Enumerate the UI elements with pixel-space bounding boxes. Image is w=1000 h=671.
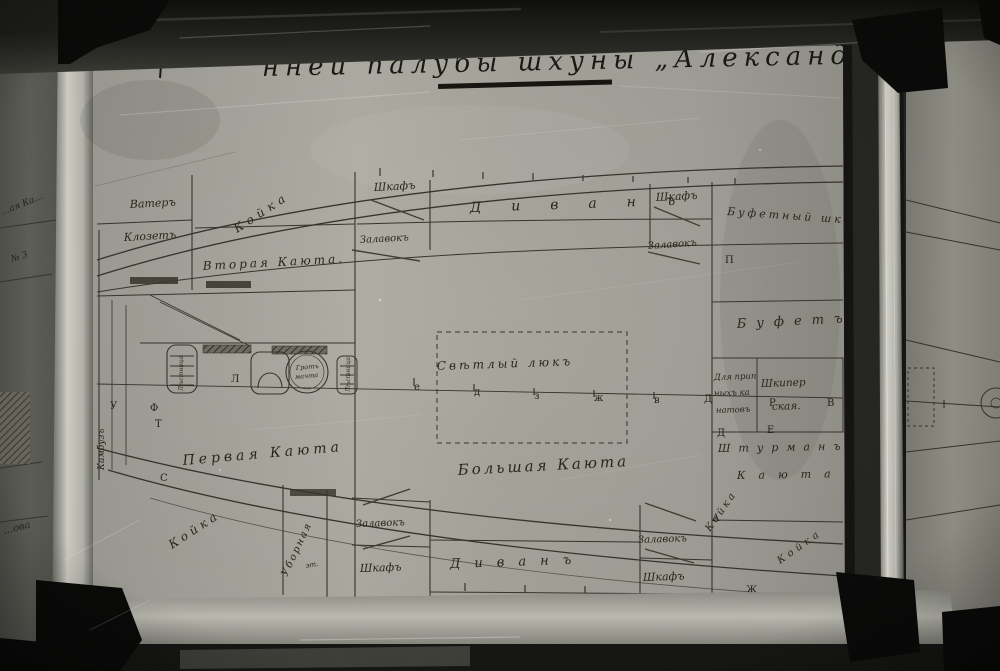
- photograph-of-deck-plan: нней палубы шхуны „Александръ“: [0, 0, 1000, 671]
- deck-plan-photo: нней палубы шхуны „Александръ“: [0, 0, 1000, 671]
- vignette: [0, 0, 1000, 671]
